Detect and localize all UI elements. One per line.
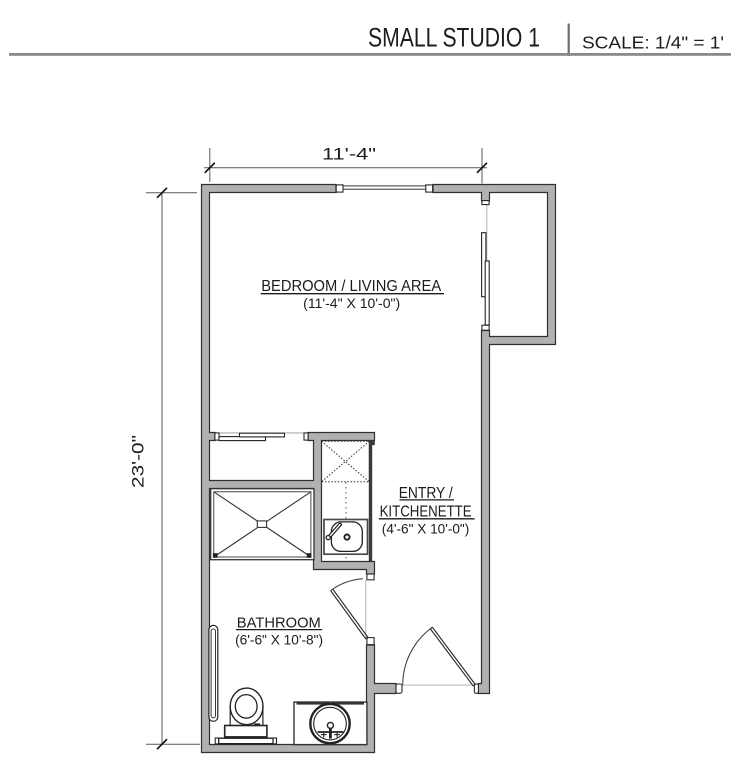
svg-text:11'-4": 11'-4": [322, 145, 376, 164]
svg-text:(4'-6" X 10'-0"): (4'-6" X 10'-0"): [382, 521, 470, 537]
svg-text:(11'-4" X 10'-0"): (11'-4" X 10'-0"): [303, 295, 400, 311]
svg-text:(6'-6" X 10'-8"): (6'-6" X 10'-8"): [235, 632, 323, 648]
svg-text:23'-0": 23'-0": [129, 435, 148, 488]
svg-text:SCALE: 1/4" = 1': SCALE: 1/4" = 1': [582, 33, 724, 53]
svg-text:KITCHENETTE: KITCHENETTE: [380, 503, 472, 520]
svg-text:SMALL STUDIO 1: SMALL STUDIO 1: [368, 23, 540, 53]
svg-text:BEDROOM / LIVING AREA: BEDROOM / LIVING AREA: [261, 278, 442, 295]
